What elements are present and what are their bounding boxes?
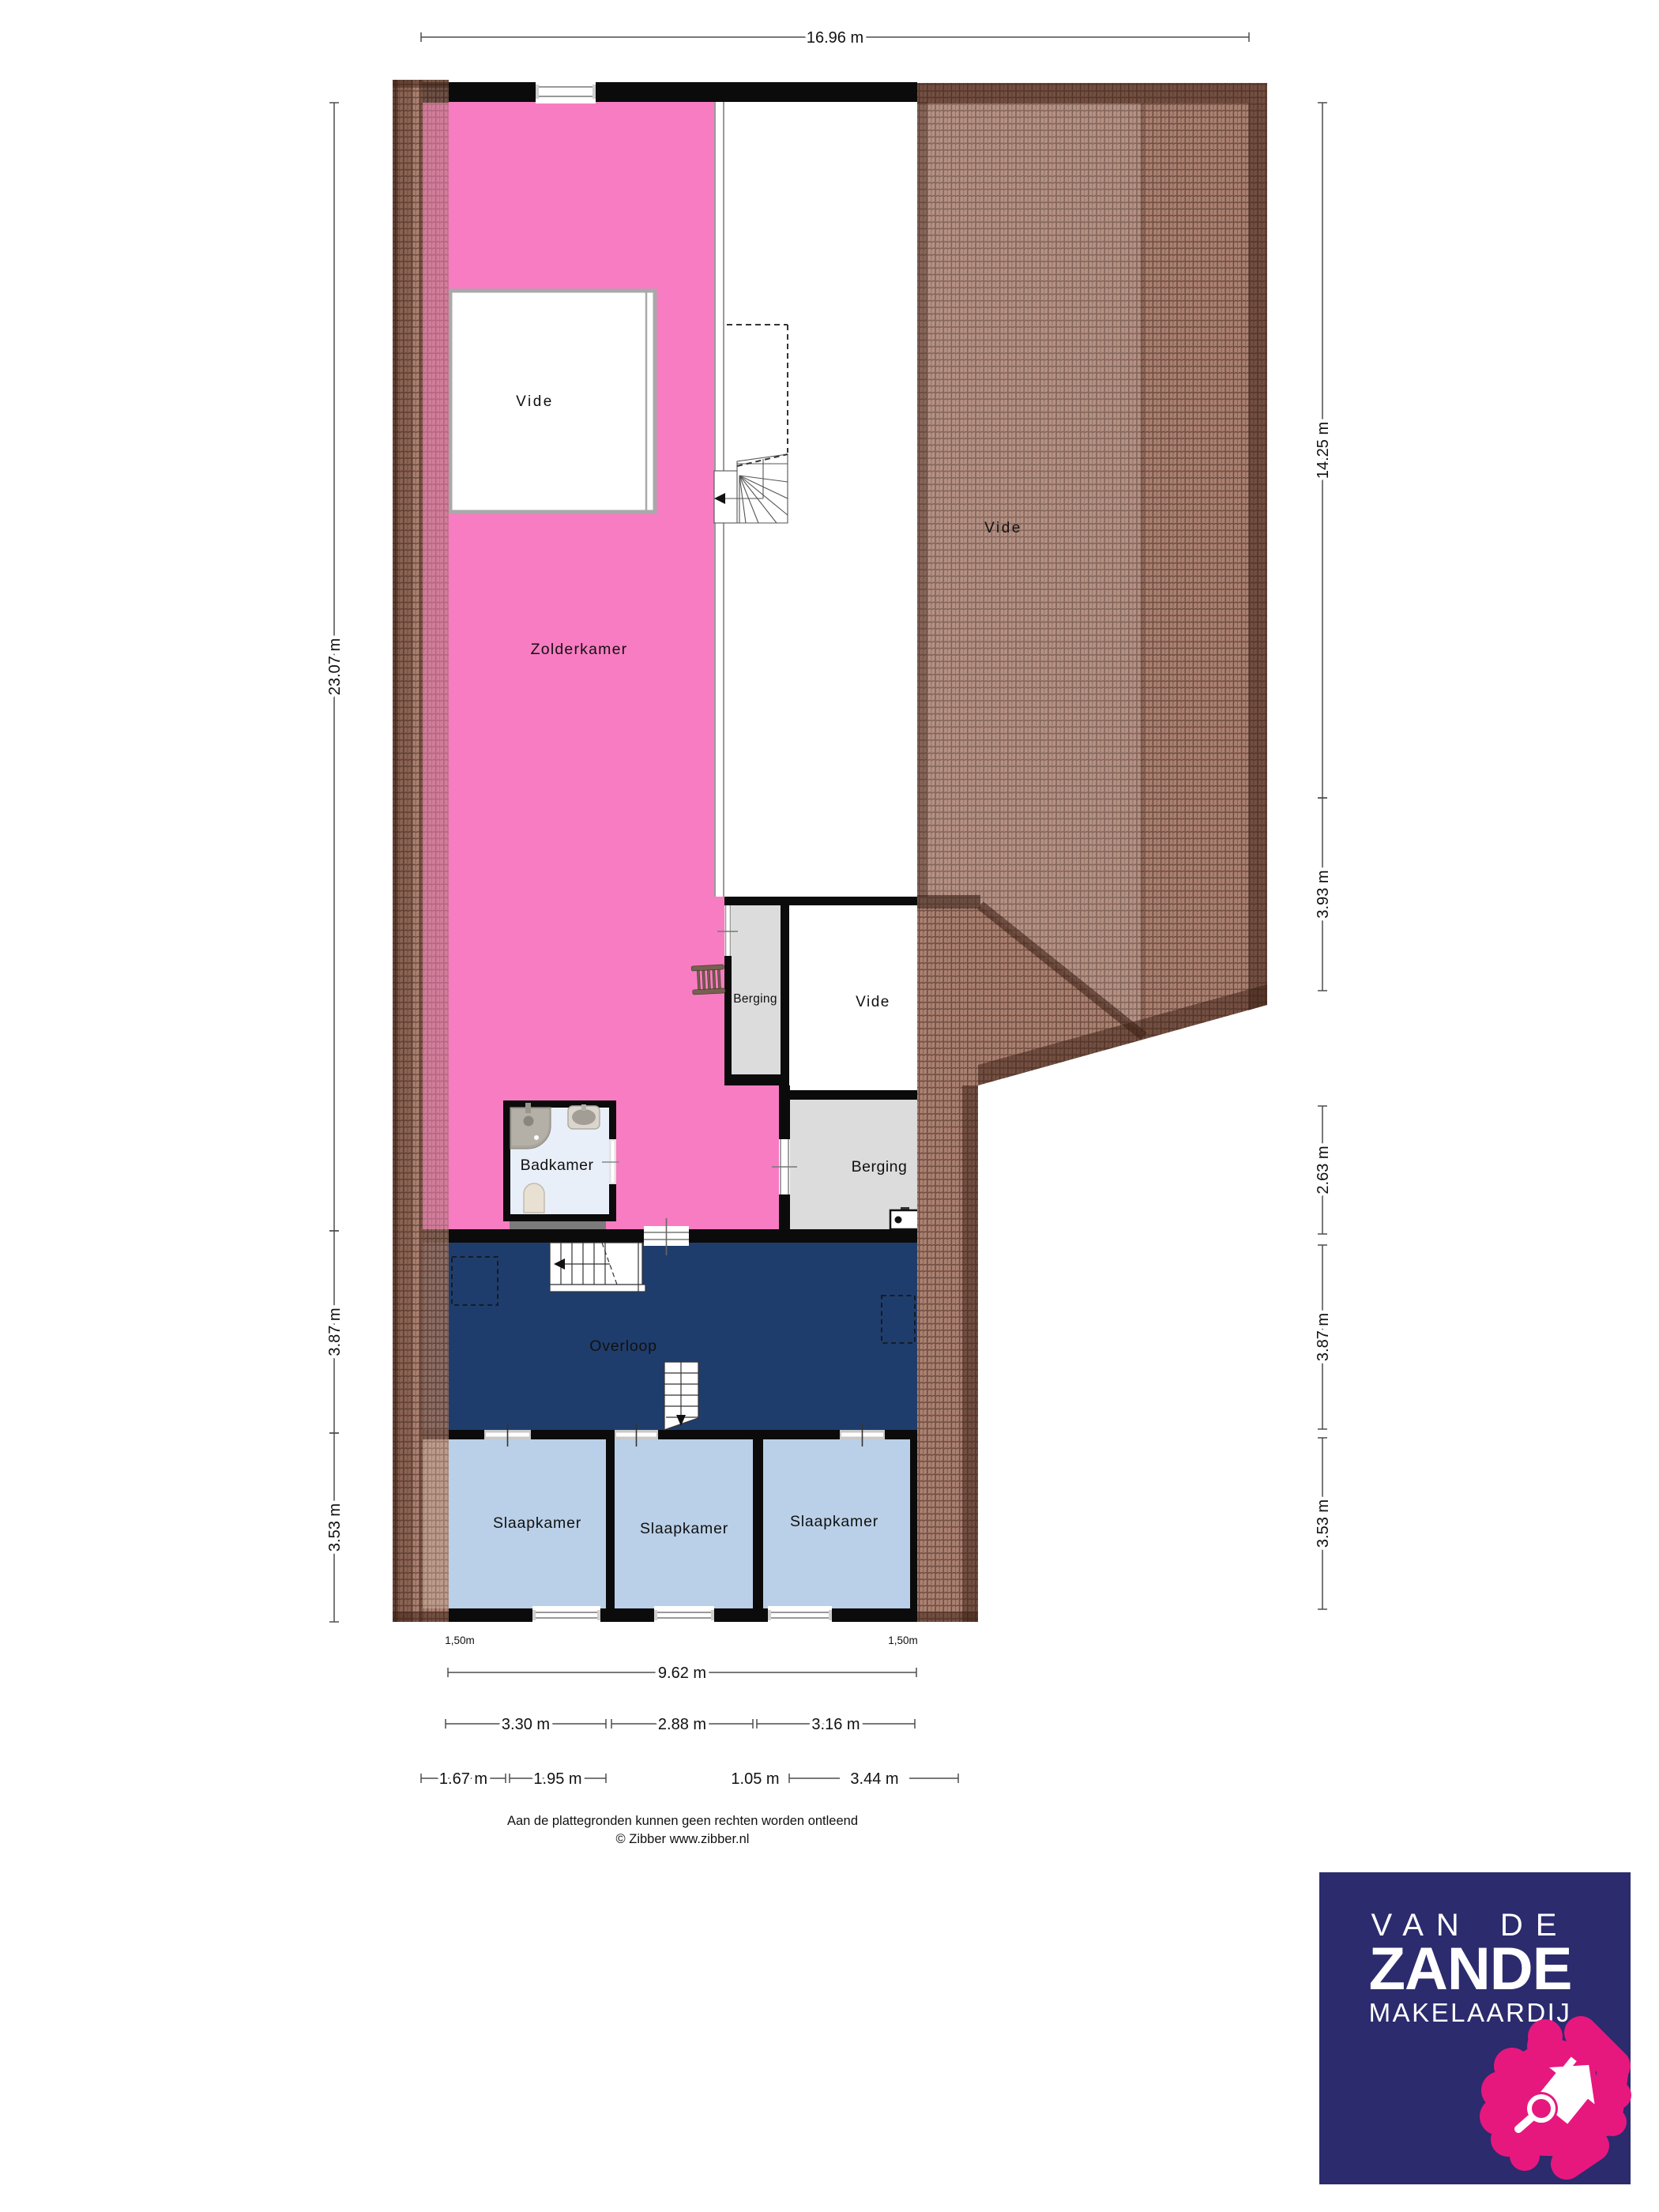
svg-text:3.53 m: 3.53 m <box>326 1503 344 1552</box>
svg-text:1.67 m: 1.67 m <box>439 1770 487 1788</box>
svg-text:3.87 m: 3.87 m <box>326 1307 344 1356</box>
svg-text:ZANDE: ZANDE <box>1369 1935 1572 2003</box>
svg-text:Vide: Vide <box>516 393 554 410</box>
svg-text:Badkamer: Badkamer <box>521 1157 594 1174</box>
svg-text:Overloop: Overloop <box>589 1337 657 1355</box>
svg-text:Vide: Vide <box>856 994 890 1010</box>
svg-text:23.07 m: 23.07 m <box>326 638 344 695</box>
svg-text:3.30 m: 3.30 m <box>502 1716 550 1733</box>
svg-text:Slaapkamer: Slaapkamer <box>640 1520 728 1537</box>
svg-text:2.88 m: 2.88 m <box>658 1716 706 1733</box>
svg-text:Berging: Berging <box>852 1158 908 1176</box>
svg-text:16.96 m: 16.96 m <box>807 29 863 47</box>
svg-text:3.53 m: 3.53 m <box>1315 1499 1332 1548</box>
svg-text:3.87 m: 3.87 m <box>1315 1313 1332 1361</box>
svg-text:Aan de plattegronden kunnen ge: Aan de plattegronden kunnen geen rechten… <box>507 1814 858 1828</box>
svg-text:14.25 m: 14.25 m <box>1315 422 1332 479</box>
svg-text:1.95 m: 1.95 m <box>533 1770 581 1788</box>
svg-text:1.05 m: 1.05 m <box>731 1770 779 1788</box>
svg-text:Slaapkamer: Slaapkamer <box>493 1514 581 1532</box>
svg-text:Berging: Berging <box>733 992 777 1006</box>
svg-text:2.63 m: 2.63 m <box>1315 1145 1332 1194</box>
svg-text:3.93 m: 3.93 m <box>1315 870 1332 918</box>
svg-text:3.44 m: 3.44 m <box>850 1770 898 1788</box>
svg-text:1,50m: 1,50m <box>888 1635 918 1646</box>
svg-text:Slaapkamer: Slaapkamer <box>790 1513 878 1530</box>
svg-text:9.62 m: 9.62 m <box>658 1665 706 1682</box>
svg-text:1,50m: 1,50m <box>445 1635 475 1646</box>
svg-text:Zolderkamer: Zolderkamer <box>531 641 628 658</box>
svg-text:© Zibber www.zibber.nl: © Zibber www.zibber.nl <box>616 1832 750 1846</box>
svg-text:3.16 m: 3.16 m <box>811 1716 860 1733</box>
svg-text:Vide: Vide <box>984 520 1022 536</box>
